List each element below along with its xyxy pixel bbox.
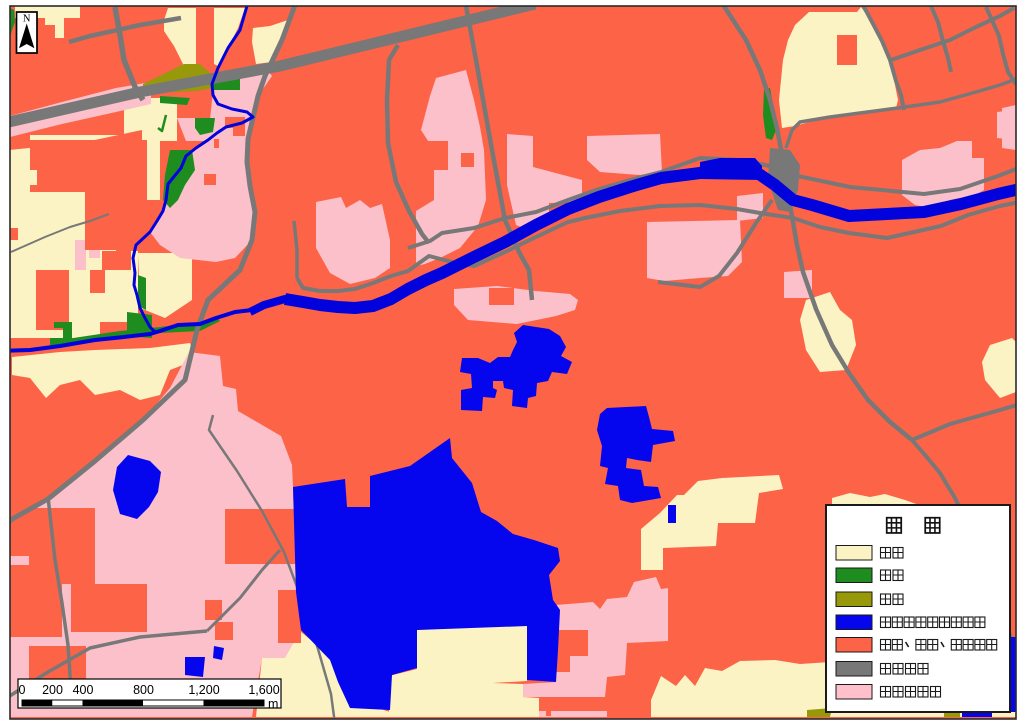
svg-text:1,600: 1,600 bbox=[248, 683, 279, 697]
svg-text:400: 400 bbox=[73, 683, 94, 697]
svg-text:0: 0 bbox=[19, 683, 26, 697]
svg-text:800: 800 bbox=[133, 683, 154, 697]
svg-text:m: m bbox=[268, 697, 278, 711]
svg-text:N: N bbox=[23, 14, 31, 25]
svg-text:200: 200 bbox=[42, 683, 63, 697]
svg-text:1,200: 1,200 bbox=[188, 683, 219, 697]
